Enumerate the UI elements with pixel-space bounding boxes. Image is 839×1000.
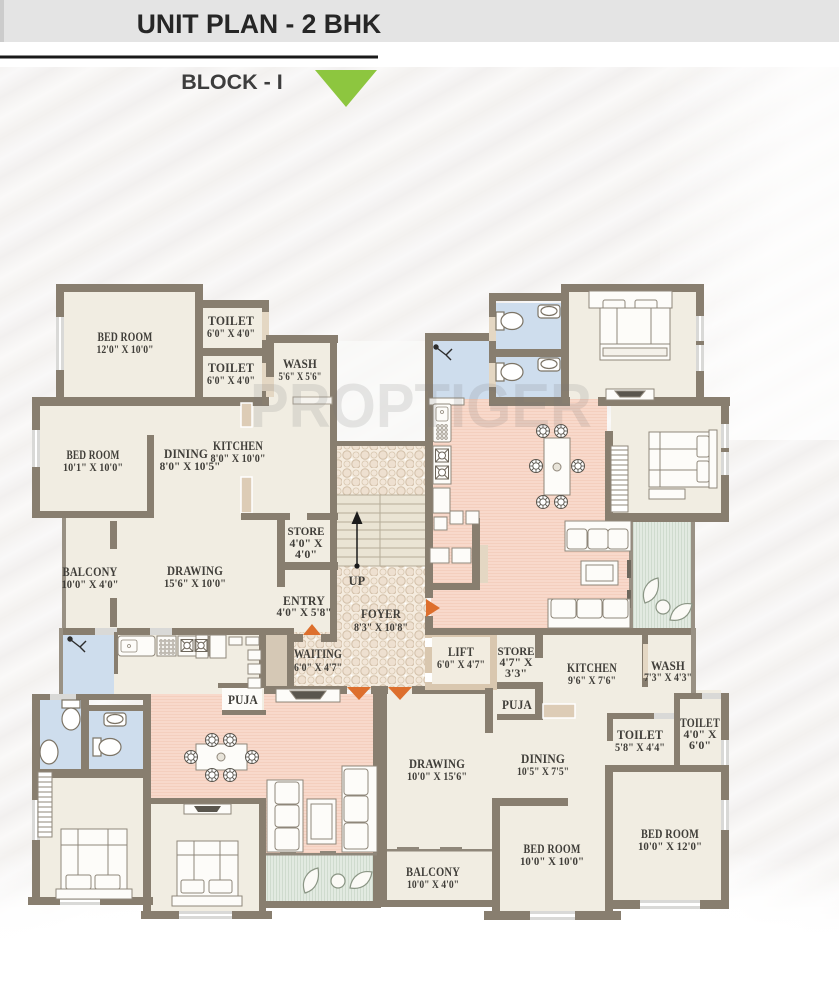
svg-text:10'0" X 4'0": 10'0" X 4'0": [407, 879, 459, 891]
svg-text:UNIT PLAN - 2 BHK: UNIT PLAN - 2 BHK: [137, 9, 381, 39]
svg-text:6'0": 6'0": [689, 740, 711, 752]
svg-text:PROPTIGER: PROPTIGER: [250, 372, 592, 441]
svg-text:LIFT: LIFT: [448, 645, 475, 659]
svg-text:DRAWING: DRAWING: [409, 757, 465, 771]
svg-text:10'0" X 4'0": 10'0" X 4'0": [62, 579, 119, 591]
svg-text:10'5" X 7'5": 10'5" X 7'5": [517, 766, 569, 778]
svg-text:10'1" X 10'0": 10'1" X 10'0": [63, 462, 123, 474]
svg-text:KITCHEN: KITCHEN: [567, 661, 617, 675]
svg-text:DINING: DINING: [164, 447, 208, 461]
svg-text:BED ROOM: BED ROOM: [641, 827, 699, 841]
svg-text:TOILET: TOILET: [208, 314, 255, 328]
svg-text:15'6" X 10'0": 15'6" X 10'0": [164, 578, 226, 590]
svg-text:ENTRY: ENTRY: [283, 594, 325, 608]
svg-text:8'3" X 10'8": 8'3" X 10'8": [354, 622, 408, 634]
svg-text:WASH: WASH: [283, 357, 317, 371]
svg-text:6'0" X 4'0": 6'0" X 4'0": [207, 328, 255, 340]
svg-text:PUJA: PUJA: [228, 693, 258, 707]
svg-text:10'0" X 10'0": 10'0" X 10'0": [520, 856, 584, 868]
svg-text:DINING: DINING: [521, 752, 565, 766]
svg-text:BED ROOM: BED ROOM: [67, 448, 120, 462]
svg-text:TOILET: TOILET: [208, 361, 255, 375]
svg-text:6'0" X 4'7": 6'0" X 4'7": [294, 662, 342, 674]
svg-text:KITCHEN: KITCHEN: [213, 439, 263, 453]
svg-text:6'0" X 4'0": 6'0" X 4'0": [207, 375, 255, 387]
svg-text:5'8" X 4'4": 5'8" X 4'4": [615, 742, 665, 754]
svg-text:10'0" X 12'0": 10'0" X 12'0": [638, 841, 702, 853]
svg-text:12'0" X 10'0": 12'0" X 10'0": [97, 344, 154, 356]
svg-text:8'0" X 10'0": 8'0" X 10'0": [211, 453, 266, 465]
svg-text:6'0" X 4'7": 6'0" X 4'7": [437, 659, 485, 671]
svg-text:STORE: STORE: [288, 526, 325, 538]
svg-text:WAITING: WAITING: [294, 647, 342, 661]
svg-text:3'3": 3'3": [505, 668, 527, 680]
svg-text:UP: UP: [349, 574, 366, 588]
svg-text:4'0" X 5'8": 4'0" X 5'8": [277, 607, 332, 619]
svg-text:BALCONY: BALCONY: [63, 565, 118, 579]
svg-text:9'6" X 7'6": 9'6" X 7'6": [568, 675, 616, 687]
svg-text:7'3" X 4'3": 7'3" X 4'3": [644, 672, 692, 684]
svg-text:TOILET: TOILET: [680, 716, 720, 730]
svg-text:DRAWING: DRAWING: [167, 564, 223, 578]
svg-text:WASH: WASH: [651, 659, 685, 673]
svg-text:FOYER: FOYER: [361, 607, 401, 621]
svg-text:4'0": 4'0": [295, 549, 317, 561]
svg-text:BLOCK - I: BLOCK - I: [181, 70, 283, 94]
svg-text:TOILET: TOILET: [617, 728, 664, 742]
svg-text:10'0" X 15'6": 10'0" X 15'6": [407, 771, 467, 783]
svg-text:PUJA: PUJA: [502, 698, 532, 712]
svg-text:BED ROOM: BED ROOM: [524, 842, 581, 856]
svg-text:BALCONY: BALCONY: [406, 865, 460, 879]
svg-text:BED ROOM: BED ROOM: [98, 330, 153, 344]
